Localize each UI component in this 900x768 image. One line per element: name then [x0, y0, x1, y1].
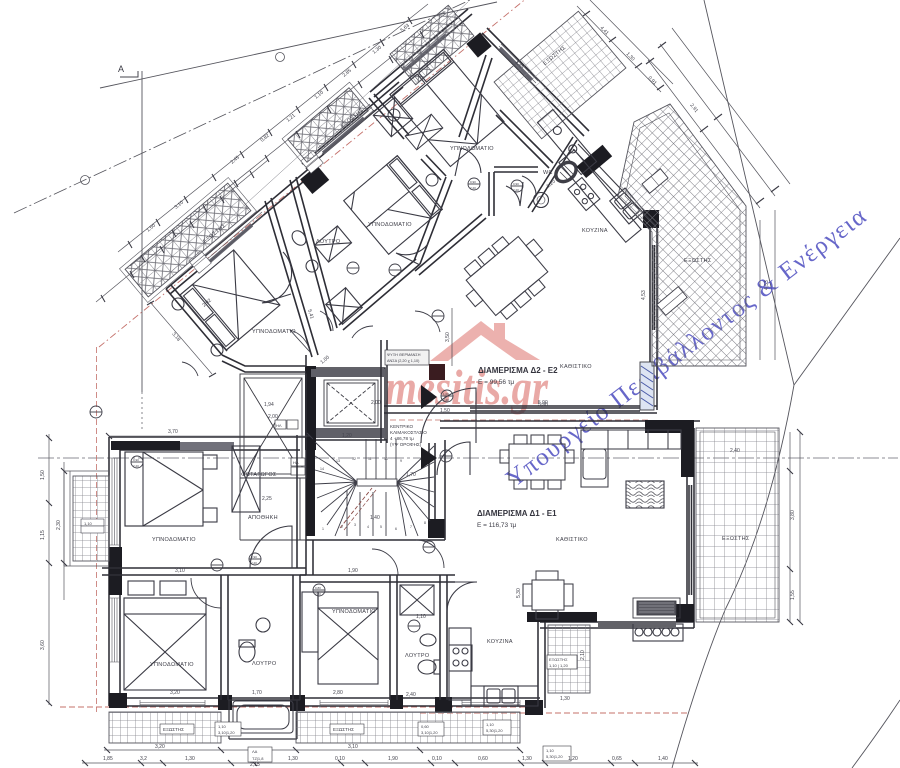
svg-text:8: 8	[424, 521, 426, 525]
svg-text:ΔΙΑΜΕΡΙΣΜΑ Δ1 - Ε1: ΔΙΑΜΕΡΙΣΜΑ Δ1 - Ε1	[477, 509, 557, 518]
svg-text:14: 14	[320, 467, 324, 471]
svg-text:9: 9	[400, 459, 402, 463]
svg-text:1,00: 1,00	[443, 392, 449, 396]
svg-text:ΕΞΩΣΤΗΣ: ΕΞΩΣΤΗΣ	[549, 657, 568, 662]
svg-text:1,10: 1,10	[546, 748, 555, 753]
svg-text:2,40: 2,40	[730, 448, 740, 454]
svg-text:0,90: 0,90	[251, 555, 257, 559]
svg-text:0,10: 0,10	[432, 756, 442, 762]
svg-text:10: 10	[384, 457, 388, 461]
svg-text:0,90: 0,90	[133, 458, 139, 462]
svg-text:ΑΠΟΘΗΚΗ: ΑΠΟΘΗΚΗ	[248, 515, 278, 521]
svg-text:1,70: 1,70	[406, 472, 416, 478]
svg-text:1: 1	[322, 527, 324, 531]
svg-text:3,80: 3,80	[790, 510, 796, 520]
svg-text:ΛΟΥΤΡΟ: ΛΟΥΤΡΟ	[405, 653, 430, 659]
svg-text:5,30|1,20: 5,30|1,20	[546, 754, 563, 759]
svg-text:ΗΛ: ΗΛ	[276, 423, 282, 428]
svg-text:1,94: 1,94	[264, 402, 274, 408]
svg-text:3,10|1,20: 3,10|1,20	[421, 730, 438, 735]
svg-text:ΔΙΑΜΕΡΙΣΜΑ Δ2 - Ε2: ΔΙΑΜΕΡΙΣΜΑ Δ2 - Ε2	[478, 366, 558, 375]
svg-text:1,50: 1,50	[440, 408, 450, 414]
svg-text:ΥΠΝΟΔΩΜΑΤΙΟ: ΥΠΝΟΔΩΜΑΤΙΟ	[332, 609, 376, 615]
svg-text:12: 12	[352, 457, 356, 461]
svg-text:5: 5	[380, 525, 382, 529]
svg-text:3,2: 3,2	[140, 756, 147, 762]
svg-text:ΥΠΝΟΔΩΜΑΤΙΟ: ΥΠΝΟΔΩΜΑΤΙΟ	[368, 222, 412, 228]
svg-text:3,50: 3,50	[445, 332, 451, 342]
svg-text:A: A	[118, 64, 124, 74]
svg-text:2: 2	[341, 525, 343, 529]
svg-text:2,30: 2,30	[56, 520, 62, 530]
svg-text:1,30: 1,30	[185, 756, 195, 762]
svg-text:1,10 | 1,20: 1,10 | 1,20	[549, 663, 569, 668]
svg-text:1,20: 1,20	[568, 756, 578, 762]
svg-text:0,80: 0,80	[315, 586, 321, 590]
svg-text:1,90: 1,90	[388, 756, 398, 762]
svg-text:5,30|1,20: 5,30|1,20	[486, 728, 503, 733]
svg-text:3,70: 3,70	[168, 429, 178, 435]
svg-text:ΚΑΘΙΣΤΙΚΟ: ΚΑΘΙΣΤΙΚΟ	[556, 537, 588, 543]
svg-text:ΤΖ|1,8: ΤΖ|1,8	[252, 756, 264, 761]
svg-text:Ε = 99,56 τμ: Ε = 99,56 τμ	[478, 379, 514, 386]
svg-text:1,30: 1,30	[288, 756, 298, 762]
svg-text:1,50: 1,50	[40, 470, 46, 480]
svg-text:1,30: 1,30	[560, 696, 570, 702]
svg-text:4,53: 4,53	[641, 290, 647, 300]
svg-text:3,10|1,20: 3,10|1,20	[218, 730, 235, 735]
svg-text:ΥΠΝΟΔΩΜΑΤΙΟ: ΥΠΝΟΔΩΜΑΤΙΟ	[450, 146, 494, 152]
svg-text:ΕΞΩΣΤΗΣ: ΕΞΩΣΤΗΣ	[722, 536, 750, 542]
svg-text:ΕΞΩΣΤΗΣ: ΕΞΩΣΤΗΣ	[163, 727, 184, 732]
svg-text:1,20: 1,20	[342, 433, 352, 439]
svg-text:1,10: 1,10	[84, 521, 93, 526]
svg-text:3,60: 3,60	[40, 640, 46, 650]
svg-text:2,25: 2,25	[262, 496, 272, 502]
svg-text:ΗΛ: ΗΛ	[293, 460, 299, 465]
svg-text:3,10: 3,10	[175, 568, 185, 574]
svg-text:ΚΟΥΖΙΝΑ: ΚΟΥΖΙΝΑ	[487, 639, 513, 645]
svg-text:ΨΥΞΗ ΘΕΡΜΑΝΣΗ: ΨΥΞΗ ΘΕΡΜΑΝΣΗ	[387, 353, 421, 357]
svg-text:ΕΞΩΣΤΗΣ: ΕΞΩΣΤΗΣ	[684, 258, 712, 264]
svg-text:1,40: 1,40	[370, 515, 380, 521]
svg-text:1,10: 1,10	[416, 614, 426, 620]
svg-text:1,10: 1,10	[218, 724, 227, 729]
svg-text:2,40: 2,40	[406, 692, 416, 698]
svg-text:6: 6	[395, 527, 397, 531]
svg-text:7: 7	[410, 525, 412, 529]
svg-text:4: 4	[367, 525, 369, 529]
svg-text:ΥΠΝΟΔΩΜΑΤΙΟ: ΥΠΝΟΔΩΜΑΤΙΟ	[152, 537, 196, 543]
svg-text:3,20: 3,20	[155, 744, 165, 750]
svg-text:1,30: 1,30	[522, 756, 532, 762]
svg-text:0,65: 0,65	[612, 756, 622, 762]
svg-text:ΚΟΥΖΙΝΑ: ΚΟΥΖΙΝΑ	[582, 228, 608, 234]
svg-text:11: 11	[368, 457, 372, 461]
svg-text:WC: WC	[543, 170, 553, 176]
svg-text:ΛΑ: ΛΑ	[252, 749, 258, 754]
svg-text:Ε = 116,73 τμ: Ε = 116,73 τμ	[477, 522, 517, 529]
svg-text:2,10: 2,10	[580, 650, 586, 660]
svg-text:1,85: 1,85	[103, 756, 113, 762]
svg-text:1,10: 1,10	[486, 722, 495, 727]
svg-text:1,70: 1,70	[252, 690, 262, 696]
svg-text:1,55: 1,55	[790, 590, 796, 600]
svg-text:ΚΑΘΙΣΤΙΚΟ: ΚΑΘΙΣΤΙΚΟ	[560, 364, 592, 370]
svg-text:5,30: 5,30	[516, 588, 522, 598]
svg-text:1,90: 1,90	[348, 568, 358, 574]
svg-text:(ΥΨ ΟΡΟΦΗΣ): (ΥΨ ΟΡΟΦΗΣ)	[390, 442, 422, 447]
svg-text:ΚΕΝΤΡΙΚΟ: ΚΕΝΤΡΙΚΟ	[390, 424, 414, 429]
svg-text:0,10: 0,10	[335, 756, 345, 762]
svg-text:ΥΠΝΟΔΩΜΑΤΙΟ: ΥΠΝΟΔΩΜΑΤΙΟ	[150, 662, 194, 668]
svg-text:1,15: 1,15	[40, 530, 46, 540]
svg-text:4,53: 4,53	[764, 280, 770, 290]
svg-text:5,90: 5,90	[538, 400, 548, 406]
svg-text:13: 13	[336, 459, 340, 463]
svg-text:3,10: 3,10	[348, 744, 358, 750]
svg-text:ΕΞΩΣΤΗΣ: ΕΞΩΣΤΗΣ	[333, 727, 354, 732]
svg-text:2,00: 2,00	[268, 414, 278, 420]
svg-text:0,60: 0,60	[478, 756, 488, 762]
svg-text:3: 3	[354, 523, 356, 527]
svg-text:3,20: 3,20	[170, 690, 180, 696]
svg-text:4 +86,78 τμ: 4 +86,78 τμ	[390, 436, 414, 441]
svg-text:2,00: 2,00	[371, 400, 381, 406]
svg-text:2,80: 2,80	[333, 690, 343, 696]
svg-text:2,15: 2,15	[250, 762, 260, 768]
svg-text:0,90: 0,90	[513, 182, 519, 186]
svg-text:0,90: 0,90	[470, 180, 476, 184]
svg-text:ΛΟΥΤΡΟ: ΛΟΥΤΡΟ	[252, 661, 277, 667]
svg-text:0,60: 0,60	[421, 724, 430, 729]
svg-text:ΑΝΣΑ (2,20 χ 1,10): ΑΝΣΑ (2,20 χ 1,10)	[387, 359, 420, 363]
svg-text:1,40: 1,40	[658, 756, 668, 762]
